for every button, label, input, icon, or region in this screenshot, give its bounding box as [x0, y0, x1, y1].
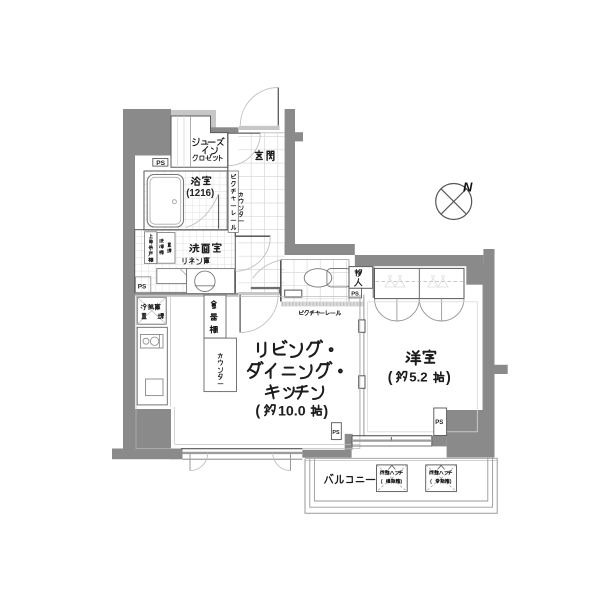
svg-text:PS: PS [156, 160, 165, 167]
svg-text:): ) [446, 370, 451, 386]
svg-text:(: ( [430, 479, 432, 485]
svg-text:PS: PS [332, 430, 340, 436]
svg-text:(: ( [255, 404, 260, 420]
svg-text:5.2: 5.2 [409, 370, 427, 385]
svg-text:PS: PS [435, 420, 443, 426]
svg-text:10.0: 10.0 [278, 403, 306, 419]
svg-text:(: ( [381, 479, 383, 485]
svg-text:PS: PS [138, 283, 147, 290]
svg-text:): ) [400, 479, 402, 485]
svg-text:): ) [323, 404, 328, 420]
svg-text:(1216): (1216) [186, 188, 214, 199]
svg-text:(: ( [388, 370, 393, 386]
svg-text:N: N [463, 180, 473, 195]
svg-text:PS: PS [351, 292, 359, 298]
svg-text:): ) [450, 479, 452, 485]
